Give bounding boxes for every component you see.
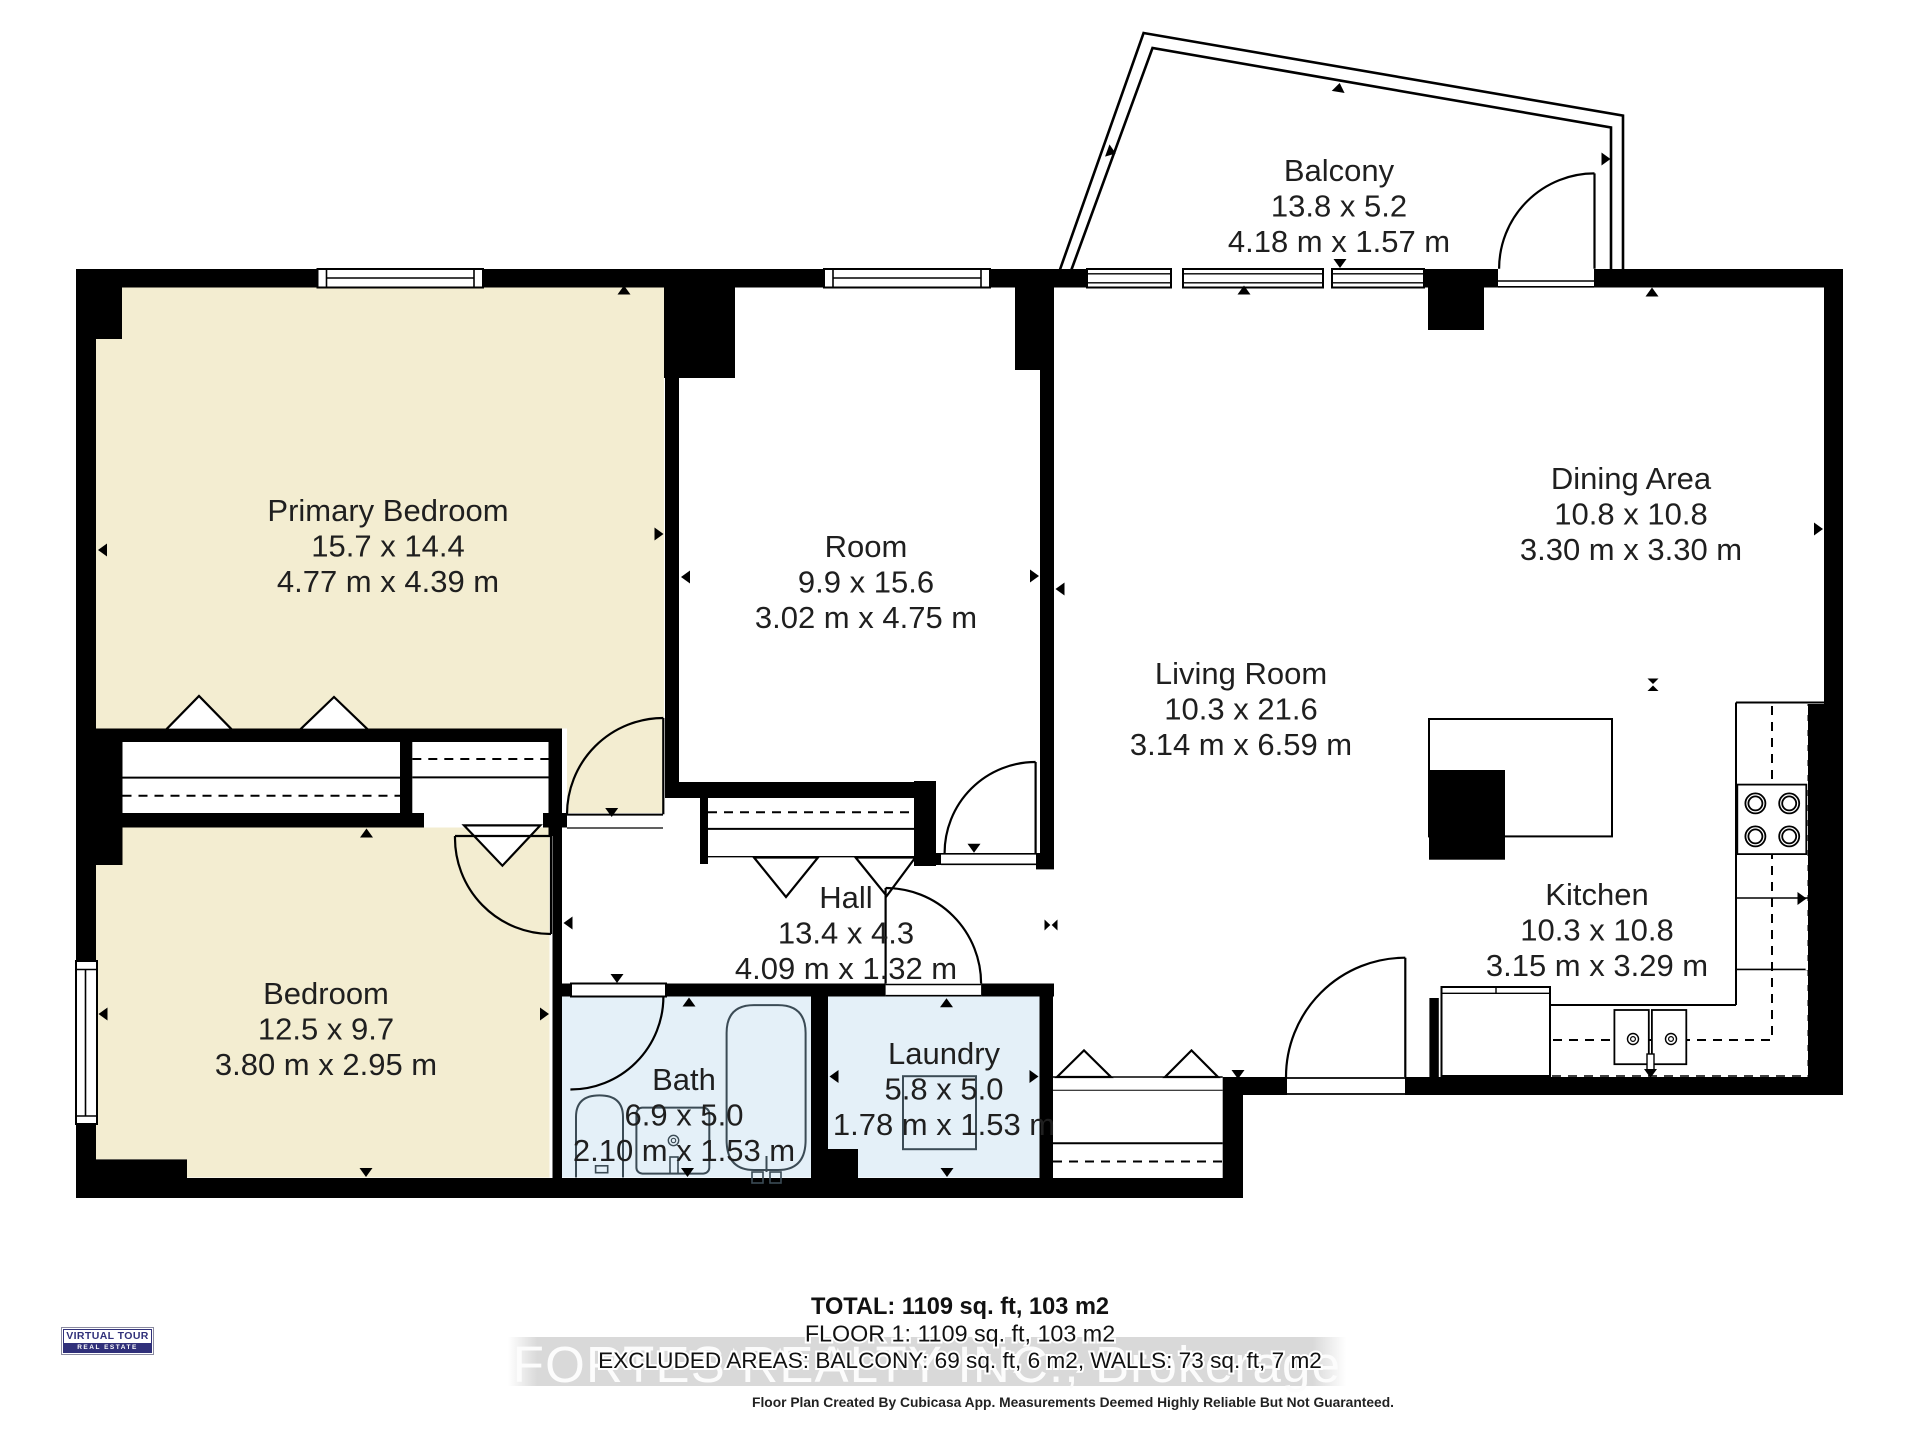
svg-text:4.77 m x 4.39 m: 4.77 m x 4.39 m	[277, 564, 499, 599]
svg-text:3.02 m x 4.75 m: 3.02 m x 4.75 m	[755, 600, 977, 635]
svg-text:3.80 m x 2.95 m: 3.80 m x 2.95 m	[215, 1047, 437, 1082]
svg-text:6.9 x 5.0: 6.9 x 5.0	[625, 1097, 744, 1132]
svg-text:3.15 m x 3.29 m: 3.15 m x 3.29 m	[1486, 948, 1708, 983]
svg-text:10.3 x 21.6: 10.3 x 21.6	[1164, 691, 1317, 726]
svg-text:Living Room: Living Room	[1155, 656, 1327, 691]
svg-text:TOTAL: 1109 sq. ft, 103 m2: TOTAL: 1109 sq. ft, 103 m2	[811, 1294, 1109, 1320]
svg-text:Kitchen: Kitchen	[1545, 877, 1648, 912]
svg-text:13.8 x 5.2: 13.8 x 5.2	[1271, 188, 1407, 223]
svg-text:15.7 x 14.4: 15.7 x 14.4	[311, 528, 464, 563]
svg-text:Bath: Bath	[652, 1062, 716, 1097]
svg-text:4.18 m x 1.57 m: 4.18 m x 1.57 m	[1228, 224, 1450, 259]
svg-text:4.09 m x 1.32 m: 4.09 m x 1.32 m	[735, 951, 957, 986]
svg-text:3.14 m x 6.59 m: 3.14 m x 6.59 m	[1130, 727, 1352, 762]
svg-text:Hall: Hall	[819, 880, 872, 915]
svg-text:Room: Room	[825, 529, 908, 564]
svg-text:5.8 x 5.0: 5.8 x 5.0	[885, 1071, 1004, 1106]
svg-text:Floor Plan Created By Cubicasa: Floor Plan Created By Cubicasa App. Meas…	[752, 1395, 1394, 1410]
svg-text:9.9 x 15.6: 9.9 x 15.6	[798, 564, 934, 599]
svg-text:3.30 m x 3.30 m: 3.30 m x 3.30 m	[1520, 532, 1742, 567]
svg-text:Primary Bedroom: Primary Bedroom	[267, 493, 508, 528]
svg-text:2.10 m x 1.53 m: 2.10 m x 1.53 m	[573, 1133, 795, 1168]
svg-text:12.5 x 9.7: 12.5 x 9.7	[258, 1011, 394, 1046]
svg-text:10.3 x 10.8: 10.3 x 10.8	[1520, 912, 1673, 947]
svg-text:Bedroom: Bedroom	[263, 976, 389, 1011]
svg-text:13.4 x 4.3: 13.4 x 4.3	[778, 915, 914, 950]
svg-text:Laundry: Laundry	[888, 1036, 1001, 1071]
svg-text:FLOOR 1: 1109 sq. ft, 103 m2: FLOOR 1: 1109 sq. ft, 103 m2	[805, 1321, 1115, 1347]
svg-text:10.8 x 10.8: 10.8 x 10.8	[1554, 496, 1707, 531]
svg-text:1.78 m x 1.53 m: 1.78 m x 1.53 m	[833, 1107, 1055, 1142]
svg-text:EXCLUDED AREAS: BALCONY: 69 sq: EXCLUDED AREAS: BALCONY: 69 sq. ft, 6 m2…	[598, 1348, 1322, 1373]
svg-text:Dining Area: Dining Area	[1551, 461, 1712, 496]
svg-text:Balcony: Balcony	[1284, 153, 1395, 188]
